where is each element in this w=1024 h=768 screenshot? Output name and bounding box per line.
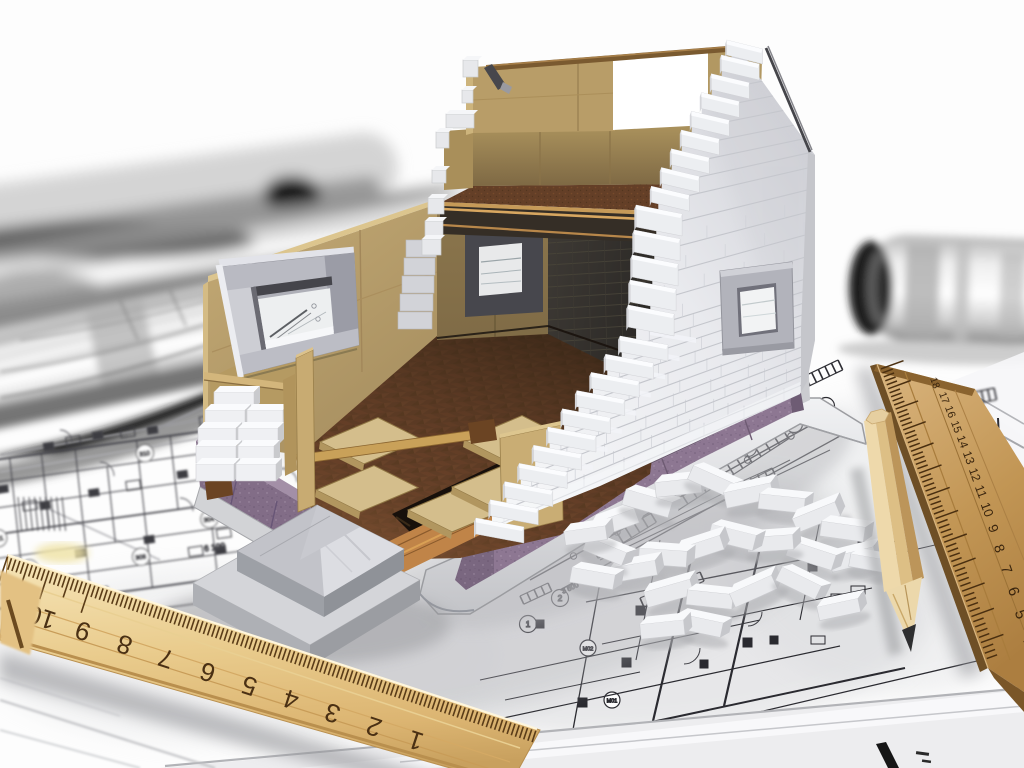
svg-text:M01: M01 bbox=[607, 699, 618, 705]
